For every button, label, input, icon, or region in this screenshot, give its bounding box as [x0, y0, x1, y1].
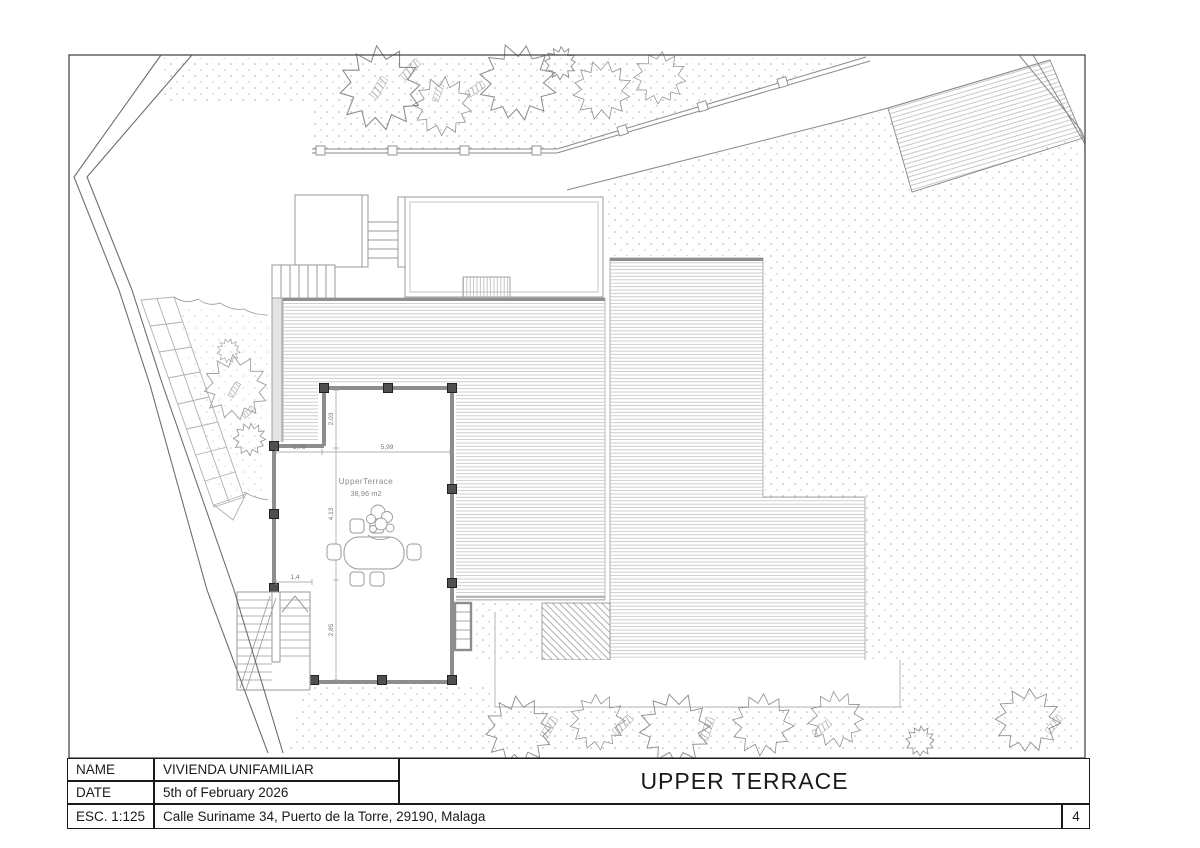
- scale-label: ESC. 1:125: [67, 804, 154, 829]
- dim-top-width: 5,99: [381, 444, 394, 451]
- page-number: 4: [1062, 804, 1090, 829]
- date-label: DATE: [67, 781, 154, 804]
- dim-upper-height: 2,03: [328, 412, 335, 425]
- stairs-upper: [362, 195, 405, 267]
- ramp-hatch: [542, 603, 610, 660]
- dim-lower-width: 1,4: [290, 574, 299, 581]
- dim-left-width: 1,76: [293, 444, 306, 451]
- house-rooms: [295, 195, 603, 297]
- sheet-title: UPPER TERRACE: [399, 758, 1090, 804]
- room-name-text: UpperTerrace: [339, 477, 394, 486]
- date-value: 5th of February 2026: [154, 781, 399, 804]
- house-west-wall: [272, 298, 282, 444]
- dim-lower-height: 2,85: [328, 623, 335, 636]
- architectural-sheet: 1,76 5,99 2,03 4,13 2,85 1,4 UpperTerrac…: [0, 0, 1200, 848]
- skylight: [463, 277, 510, 297]
- site-plan-drawing: 1,76 5,99 2,03 4,13 2,85 1,4 UpperTerrac…: [0, 0, 1200, 848]
- address-value: Calle Suriname 34, Puerto de la Torre, 2…: [154, 804, 1062, 829]
- dim-middle-height: 4,13: [328, 507, 335, 520]
- name-label: NAME: [67, 758, 154, 781]
- stairs-main: [237, 592, 310, 690]
- ladder: [455, 603, 471, 650]
- stairs-side: [272, 265, 335, 298]
- room-area-text: 38,96 m2: [350, 489, 381, 498]
- name-value: VIVIENDA UNIFAMILIAR: [154, 758, 399, 781]
